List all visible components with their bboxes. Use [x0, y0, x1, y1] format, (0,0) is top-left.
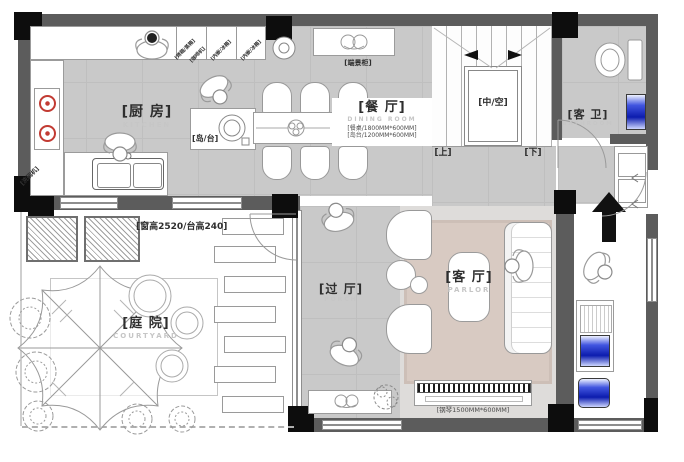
bottom-window-2	[578, 420, 642, 430]
column	[644, 398, 658, 432]
column	[554, 190, 576, 214]
shoe-cabinet-cell	[618, 153, 646, 177]
courtyard-fence	[22, 426, 294, 428]
floor-plan: [厨 房] KITCHEN [餐 厅] DINING ROOM [餐桌/1800…	[0, 0, 684, 462]
dryer	[578, 378, 610, 408]
washer	[576, 300, 614, 372]
island-label: [岛/台]	[192, 134, 252, 144]
person-icon	[579, 247, 619, 289]
stove-burner-icon	[39, 125, 56, 142]
entry-arrow-icon	[602, 212, 616, 242]
bathroom-label-en: BATHROOM	[556, 121, 620, 128]
right-window	[647, 238, 657, 302]
courtyard-left-edge	[20, 212, 22, 426]
kitchen-label-en: KITCHEN	[92, 121, 202, 129]
wall-living-right	[556, 192, 574, 418]
piano	[414, 380, 532, 406]
dining-label-cn: [餐 厅]	[332, 100, 432, 116]
gas-stove	[34, 88, 60, 150]
column	[548, 404, 574, 432]
end-cabinet	[313, 28, 395, 56]
stepping-stone	[222, 396, 284, 413]
kitchen-window-2	[172, 197, 242, 209]
dining-table-note: [餐桌/1800MM*600MM]	[332, 125, 432, 132]
dining-chair	[262, 82, 292, 116]
washer-top	[580, 305, 612, 333]
dining-label: [餐 厅] DINING ROOM [餐桌/1800MM*600MM] [岛台/…	[332, 100, 432, 139]
sink-basin	[97, 163, 131, 188]
stove-burner-icon	[39, 95, 56, 112]
bathroom-window	[626, 94, 646, 130]
piano-note: [钢琴1500MM*600MM]	[416, 407, 530, 415]
dining-chair	[300, 82, 330, 116]
bathroom-label: [客 卫] BATHROOM	[556, 108, 620, 128]
kitchen-window-1	[60, 197, 118, 209]
hall-label-cn: [过 厅]	[306, 282, 376, 296]
stool	[410, 276, 428, 294]
entry-arrow-icon	[592, 192, 626, 212]
stepping-stone	[214, 246, 276, 263]
column	[552, 12, 578, 38]
sink-basin	[133, 163, 162, 188]
piano-keys	[417, 383, 531, 393]
dining-island-note: [岛台/1200MM*600MM]	[332, 132, 432, 139]
stair-up-label: [上]	[430, 148, 456, 159]
courtyard-label-en: COURTYARD	[98, 332, 194, 340]
stepping-stone	[214, 366, 276, 383]
dining-chair	[262, 146, 292, 180]
bathroom-label-cn: [客 卫]	[556, 108, 620, 121]
column	[266, 16, 292, 40]
kitchen-sink	[92, 158, 164, 190]
courtyard-label-cn: [庭 院]	[98, 316, 194, 332]
stepping-stone	[214, 306, 276, 323]
dining-label-en: DINING ROOM	[332, 116, 432, 123]
hall-label-en: PORCH	[306, 296, 376, 303]
planter	[84, 216, 140, 262]
column	[28, 196, 54, 216]
washer-door	[580, 335, 610, 367]
hall-floor	[300, 206, 400, 420]
courtyard-glass-door	[292, 210, 302, 408]
planter	[26, 216, 78, 262]
stair-void-label: [中/空]	[464, 98, 522, 109]
window-height-note: [窗高2520/台高240]	[136, 222, 256, 233]
kitchen-label: [厨 房] KITCHEN	[92, 104, 202, 129]
piano-lid-line	[425, 396, 523, 402]
console-cabinet	[308, 390, 392, 414]
stepping-stone	[224, 336, 286, 353]
parlor-label-en: PARLOR	[434, 286, 504, 294]
bottom-window-1	[322, 420, 402, 430]
armchair	[386, 304, 432, 354]
parlor-label-cn: [客 厅]	[434, 270, 504, 286]
dining-chair	[338, 146, 368, 180]
stepping-stone	[224, 276, 286, 293]
parlor-label: [客 厅] PARLOR	[434, 270, 504, 294]
armchair	[386, 210, 432, 260]
hall-label: [过 厅] PORCH	[306, 282, 376, 304]
courtyard-label: [庭 院] COURTYARD	[98, 316, 194, 340]
kitchen-label-cn: [厨 房]	[92, 104, 202, 121]
end-cabinet-label: [端景柜]	[328, 59, 388, 67]
dining-chair	[300, 146, 330, 180]
sofa	[504, 222, 552, 354]
column	[272, 194, 298, 218]
wall-bathroom-bottom	[610, 134, 646, 144]
stair-down-label: [下]	[520, 148, 546, 159]
